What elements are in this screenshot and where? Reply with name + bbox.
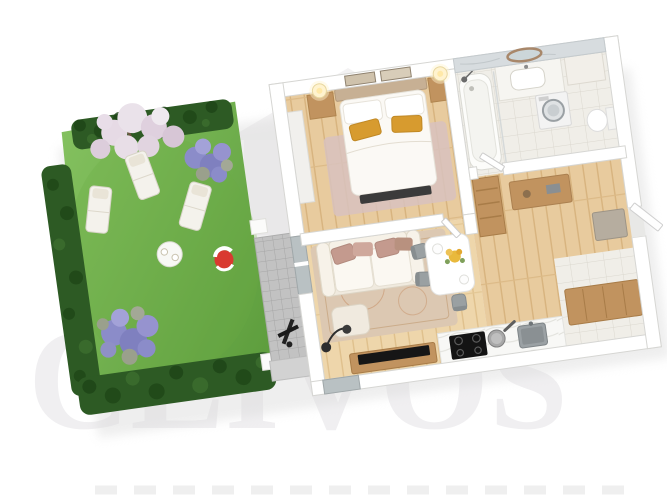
sofa-pillow-4 xyxy=(395,237,413,250)
floor-plan-render: CLIVOS xyxy=(0,0,667,500)
bath-wall-a xyxy=(469,167,479,180)
sun-lounger-1 xyxy=(85,186,112,234)
bath-cabinet xyxy=(564,52,606,85)
doormat xyxy=(592,209,628,241)
floor-plan-screenshot: CLIVOS xyxy=(0,0,667,500)
basin xyxy=(510,66,546,91)
beach-ball xyxy=(213,247,235,271)
cup-2 xyxy=(172,254,179,261)
washing-machine xyxy=(535,91,571,129)
cup-1 xyxy=(161,248,168,255)
dining-table xyxy=(424,233,476,297)
terrace-pillar xyxy=(250,219,268,235)
pillow-mustard-right xyxy=(392,115,423,132)
hall-stub-wall xyxy=(463,213,478,234)
dining-chair-3 xyxy=(451,293,467,311)
double-bed xyxy=(334,77,441,206)
induction-hob xyxy=(449,331,488,360)
pouf xyxy=(331,303,371,338)
sofa-pillow-2 xyxy=(353,242,373,256)
